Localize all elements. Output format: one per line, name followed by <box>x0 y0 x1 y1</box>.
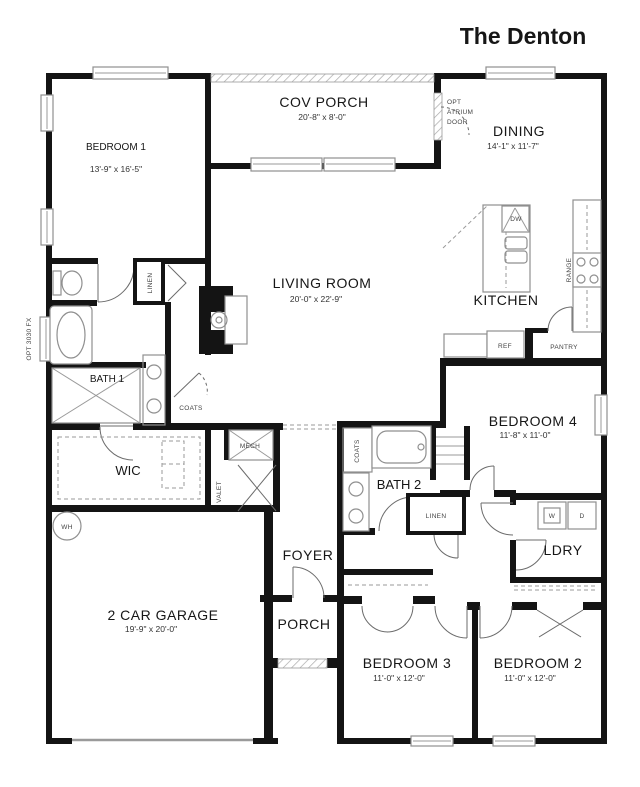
bedroom3-label: BEDROOM 3 <box>363 655 452 671</box>
linen-hall-label: LINEN <box>426 513 447 520</box>
bedroom2-label: BEDROOM 2 <box>494 655 583 671</box>
bedroom3-door <box>435 606 467 638</box>
porch-step-hatch <box>278 659 327 668</box>
porch-roof-edge <box>211 74 434 82</box>
fridge-label: REF <box>498 343 512 350</box>
tub <box>50 306 92 364</box>
kitchen-label: KITCHEN <box>474 292 539 308</box>
foyer-label: FOYER <box>283 547 334 563</box>
bedroom2-closet-doors <box>537 610 583 637</box>
pantry-label: PANTRY <box>550 344 578 351</box>
bedroom3-closet-doors <box>362 606 413 632</box>
front-door <box>293 567 324 598</box>
garage-dims: 19'-9" x 20'-0" <box>125 624 177 634</box>
bedroom4-door <box>470 466 494 490</box>
laundry-hall-door <box>481 503 513 535</box>
linen-bath1-label: LINEN <box>147 273 154 294</box>
laundry-label: LDRY <box>543 542 582 558</box>
kitchen-boundary-dash <box>443 206 487 248</box>
vanity2-double-sink <box>343 473 369 531</box>
bedroom1-left-window-2 <box>41 209 53 245</box>
water-heater-label: WH <box>61 524 72 531</box>
opt-window-label: OPT 3030 FX <box>26 317 33 360</box>
laundry-fixtures <box>538 502 596 529</box>
bedroom2-bottom-window <box>493 736 535 746</box>
coats-bath2-label: COATS <box>354 439 361 463</box>
living-room-dims: 20'-0" x 22'-9" <box>290 294 342 304</box>
bedroom3-dims: 11'-0" x 12'-0" <box>373 673 425 683</box>
range-label: RANGE <box>566 257 573 282</box>
garage-label: 2 CAR GARAGE <box>107 607 218 623</box>
bedroom1-left-window-1 <box>41 95 53 131</box>
kitchen-fixtures <box>443 200 601 358</box>
shelf-closet <box>436 437 464 464</box>
wic-label: WIC <box>115 463 140 478</box>
mech-doors <box>238 465 276 511</box>
bedroom1-top-window <box>93 67 168 79</box>
floor-plan: The Denton <box>0 0 640 787</box>
range-cooktop <box>573 253 601 287</box>
dining-dims: 14'-1" x 11'-7" <box>487 141 539 151</box>
cov-porch-dims: 20'-8" x 8'-0" <box>298 112 346 122</box>
bath1-label: BATH 1 <box>90 374 125 385</box>
porch-label: PORCH <box>277 616 330 632</box>
bedroom4-dims: 11'-8" x 11'-0" <box>499 430 550 440</box>
bedroom1-dims: 13'-9" x 16'-5" <box>90 164 142 174</box>
living-north-window-2 <box>324 158 395 171</box>
coats-hall-label: COATS <box>179 405 203 412</box>
washer-label: W <box>549 513 556 520</box>
linen-bath1-door <box>168 265 186 301</box>
dishwasher-label: DW <box>510 216 522 223</box>
bedroom4-right-window <box>595 395 607 435</box>
bath1-door <box>98 264 134 302</box>
bedroom1-label: BEDROOM 1 <box>86 142 146 153</box>
atrium-label-line2: ATRIUM <box>447 109 473 116</box>
dryer-label: D <box>580 513 585 520</box>
valet-label: VALET <box>216 481 223 503</box>
atrium-label-line3: DOOR <box>447 119 468 126</box>
mech-label: MECH <box>240 443 260 450</box>
wic-door <box>100 426 133 460</box>
tub2 <box>372 426 431 468</box>
coffee-bar-counter <box>444 334 487 357</box>
living-room-label: LIVING ROOM <box>273 275 372 291</box>
dining-top-window <box>486 67 555 79</box>
bedroom2-door <box>480 606 512 638</box>
plan-title: The Denton <box>460 23 587 49</box>
linen-hall-door <box>434 534 458 558</box>
bath2-label: BATH 2 <box>377 477 422 492</box>
bedroom2-dims: 11'-0" x 12'-0" <box>504 673 556 683</box>
living-north-window-1 <box>251 158 322 171</box>
room-labels: BEDROOM 1 13'-9" x 16'-5" COV PORCH 20'-… <box>86 94 583 683</box>
atrium-label-line1: OPT <box>447 99 461 106</box>
vanity-double-sink <box>143 355 165 425</box>
bedroom3-bottom-window <box>411 736 453 746</box>
toilet <box>53 271 82 295</box>
dining-label: DINING <box>493 123 545 139</box>
pantry-door <box>548 307 572 331</box>
laundry-door <box>516 540 546 570</box>
bedroom4-label: BEDROOM 4 <box>489 413 578 429</box>
cov-porch-label: COV PORCH <box>279 94 368 110</box>
fireplace <box>199 286 247 354</box>
coats-hall-door <box>174 373 207 397</box>
